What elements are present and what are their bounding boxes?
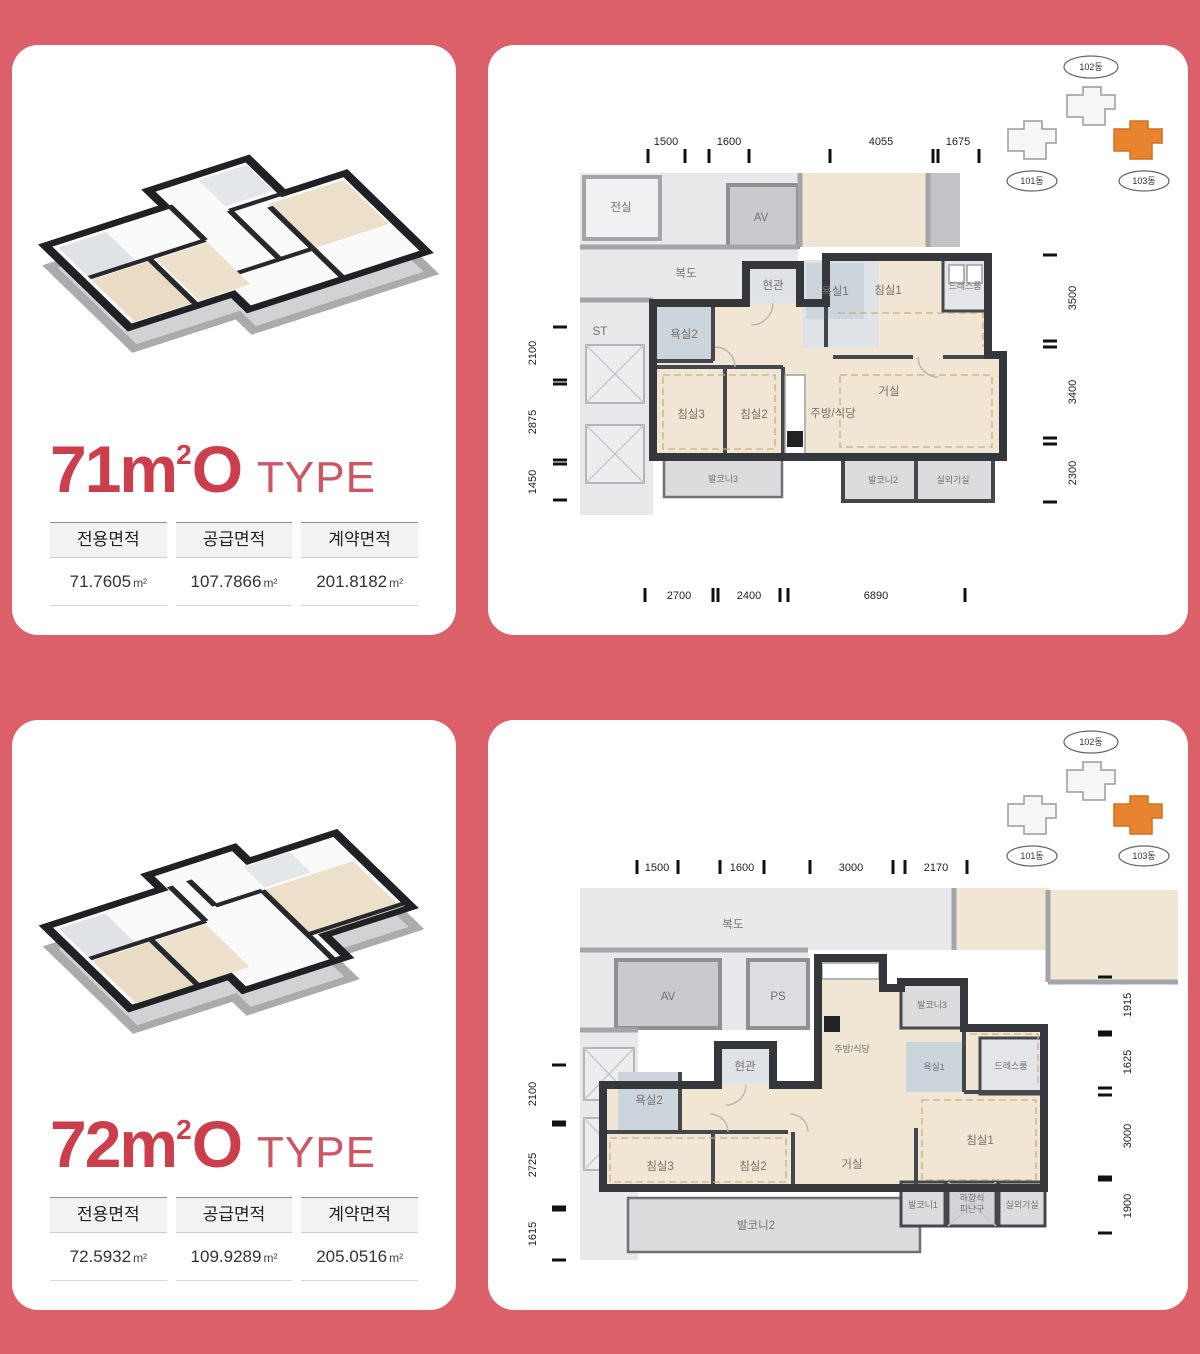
room-label-av: AV [661, 991, 676, 1003]
dim-label: 1600 [730, 862, 754, 874]
area-col-contract: 계약면적 205.0516m² [301, 1197, 418, 1281]
room-label-av: AV [754, 212, 769, 224]
room-label-bed1: 침실1 [966, 1134, 994, 1147]
room-label-hatch-line2: 피난구 [960, 1204, 985, 1214]
dim-label: 2725 [527, 1153, 539, 1177]
room-label-living: 거실 [841, 1158, 862, 1171]
area-col-exclusive: 전용면적 71.7605m² [50, 522, 167, 606]
dim-label: 1625 [1122, 1050, 1134, 1074]
dim-label: 1450 [527, 470, 539, 494]
area-value: 72.5932m² [50, 1233, 167, 1281]
area-header: 전용면적 [50, 522, 167, 558]
area-header: 계약면적 [301, 522, 418, 558]
area-value: 201.8182m² [301, 558, 418, 606]
room-label-kitchen: 주방/식당 [810, 407, 856, 420]
dim-label: 2300 [1067, 461, 1079, 485]
area-value: 107.7866m² [176, 558, 293, 606]
room-label-entry: 현관 [734, 1060, 756, 1073]
room-label-bath2: 욕실2 [635, 1094, 663, 1107]
dim-label: 2700 [667, 590, 691, 602]
room-label-bath1: 욕실1 [923, 1062, 945, 1072]
site-label-102: 102동 [1079, 737, 1102, 747]
site-label-103: 103동 [1132, 176, 1155, 186]
room-label-bath2: 욕실2 [670, 328, 698, 341]
type-number: 71 [50, 432, 119, 506]
area-col-supply: 공급면적 109.9289m² [176, 1197, 293, 1281]
room-label-corridor: 복도 [722, 918, 743, 931]
room-label-outdoor-unit: 실외기실 [936, 474, 969, 485]
room-label-jeonsil: 전실 [610, 201, 631, 214]
type-letter: O [192, 432, 241, 506]
room-label-kitchen: 주방/식당 [834, 1044, 870, 1054]
site-label-102: 102동 [1079, 62, 1102, 72]
room-label-bed2: 침실2 [740, 408, 768, 421]
dim-label: 1615 [527, 1222, 539, 1246]
area-header: 공급면적 [176, 522, 293, 558]
dim-label: 1600 [717, 136, 741, 148]
dim-label: 2100 [527, 341, 539, 365]
type-number: 72 [50, 1107, 119, 1181]
area-value: 205.0516m² [301, 1233, 418, 1281]
room-label-ps: PS [770, 991, 786, 1003]
site-plan: 102동 101동 103동 [1007, 56, 1169, 191]
type-title-71: 71m2OTYPE [50, 433, 376, 521]
site-label-103: 103동 [1132, 851, 1155, 861]
area-table-71: 전용면적 71.7605m² 공급면적 107.7866m² 계약면적 201.… [50, 522, 418, 606]
floorplan-3d-render-71 [22, 73, 446, 413]
room-label-bath1: 욕실1 [821, 285, 849, 298]
type-word: TYPE [257, 1128, 376, 1177]
type-title-72: 72m2OTYPE [50, 1108, 376, 1196]
dim-label: 3000 [839, 862, 863, 874]
dim-label: 4055 [869, 136, 893, 148]
area-header: 전용면적 [50, 1197, 167, 1233]
type-unit-m: m [119, 432, 176, 506]
room-label-bed3: 침실3 [646, 1160, 674, 1173]
room-label-balcony2: 발코니2 [868, 475, 898, 485]
dim-label: 1900 [1122, 1194, 1134, 1218]
room-label-bed1: 침실1 [874, 284, 902, 297]
dim-label: 1500 [654, 136, 678, 148]
dim-label: 2170 [924, 862, 948, 874]
site-label-101: 101동 [1020, 176, 1043, 186]
type72-info-card: 72m2OTYPE 전용면적 72.5932m² 공급면적 109.9289m²… [12, 720, 456, 1310]
room-label-outdoor-unit: 실외기실 [1005, 1199, 1038, 1210]
type-letter: O [192, 1107, 241, 1181]
room-label-balcony2: 발코니2 [737, 1219, 775, 1232]
dim-label: 1675 [946, 136, 970, 148]
area-table-72: 전용면적 72.5932m² 공급면적 109.9289m² 계약면적 205.… [50, 1197, 418, 1281]
room-label-dress: 드레스룸 [948, 281, 981, 291]
dim-label: 3000 [1122, 1124, 1134, 1148]
type-unit-sup: 2 [176, 1114, 192, 1145]
dim-label: 1500 [645, 862, 669, 874]
area-header: 계약면적 [301, 1197, 418, 1233]
area-value: 71.7605m² [50, 558, 167, 606]
type71-plan-card: 1500 1600 4055 1675 2100 2875 1450 3500 … [488, 45, 1188, 635]
area-col-supply: 공급면적 107.7866m² [176, 522, 293, 606]
type-unit-m: m [119, 1107, 176, 1181]
site-label-101: 101동 [1020, 851, 1043, 861]
room-label-balcony1: 발코니1 [908, 1200, 938, 1210]
dim-label: 2400 [737, 590, 761, 602]
room-label-dress: 드레스룸 [994, 1061, 1027, 1071]
dim-label: 3400 [1067, 380, 1079, 404]
type-word: TYPE [257, 453, 376, 502]
room-label-balcony3: 발코니3 [708, 474, 738, 484]
room-label-st: ST [593, 326, 608, 338]
page: 71m2OTYPE 전용면적 71.7605m² 공급면적 107.7866m²… [0, 0, 1200, 1354]
type71-info-card: 71m2OTYPE 전용면적 71.7605m² 공급면적 107.7866m²… [12, 45, 456, 635]
dim-label: 1915 [1122, 993, 1134, 1017]
site-plan: 102동 101동 103동 [1007, 731, 1169, 866]
area-value: 109.9289m² [176, 1233, 293, 1281]
floorplan-71: 1500 1600 4055 1675 2100 2875 1450 3500 … [488, 45, 1188, 635]
dim-label: 3500 [1067, 286, 1079, 310]
room-label-bed2: 침실2 [739, 1160, 767, 1173]
room-label-bed3: 침실3 [677, 408, 705, 421]
area-col-contract: 계약면적 201.8182m² [301, 522, 418, 606]
dim-label: 2875 [527, 410, 539, 434]
type-unit-sup: 2 [176, 439, 192, 470]
floorplan-72: 1500 1600 3000 2170 2100 2725 1615 1915 … [488, 720, 1188, 1310]
room-label-living: 거실 [878, 385, 899, 398]
room-label-balcony3: 발코니3 [917, 1000, 947, 1010]
room-label-corridor: 복도 [675, 267, 696, 280]
area-header: 공급면적 [176, 1197, 293, 1233]
type72-plan-card: 1500 1600 3000 2170 2100 2725 1615 1915 … [488, 720, 1188, 1310]
room-label-hatch-line1: 하향식 [960, 1192, 985, 1203]
area-col-exclusive: 전용면적 72.5932m² [50, 1197, 167, 1281]
room-label-entry: 현관 [762, 279, 784, 292]
dim-label: 2100 [527, 1082, 539, 1106]
dim-label: 6890 [864, 590, 888, 602]
floorplan-3d-render-72 [22, 748, 446, 1088]
